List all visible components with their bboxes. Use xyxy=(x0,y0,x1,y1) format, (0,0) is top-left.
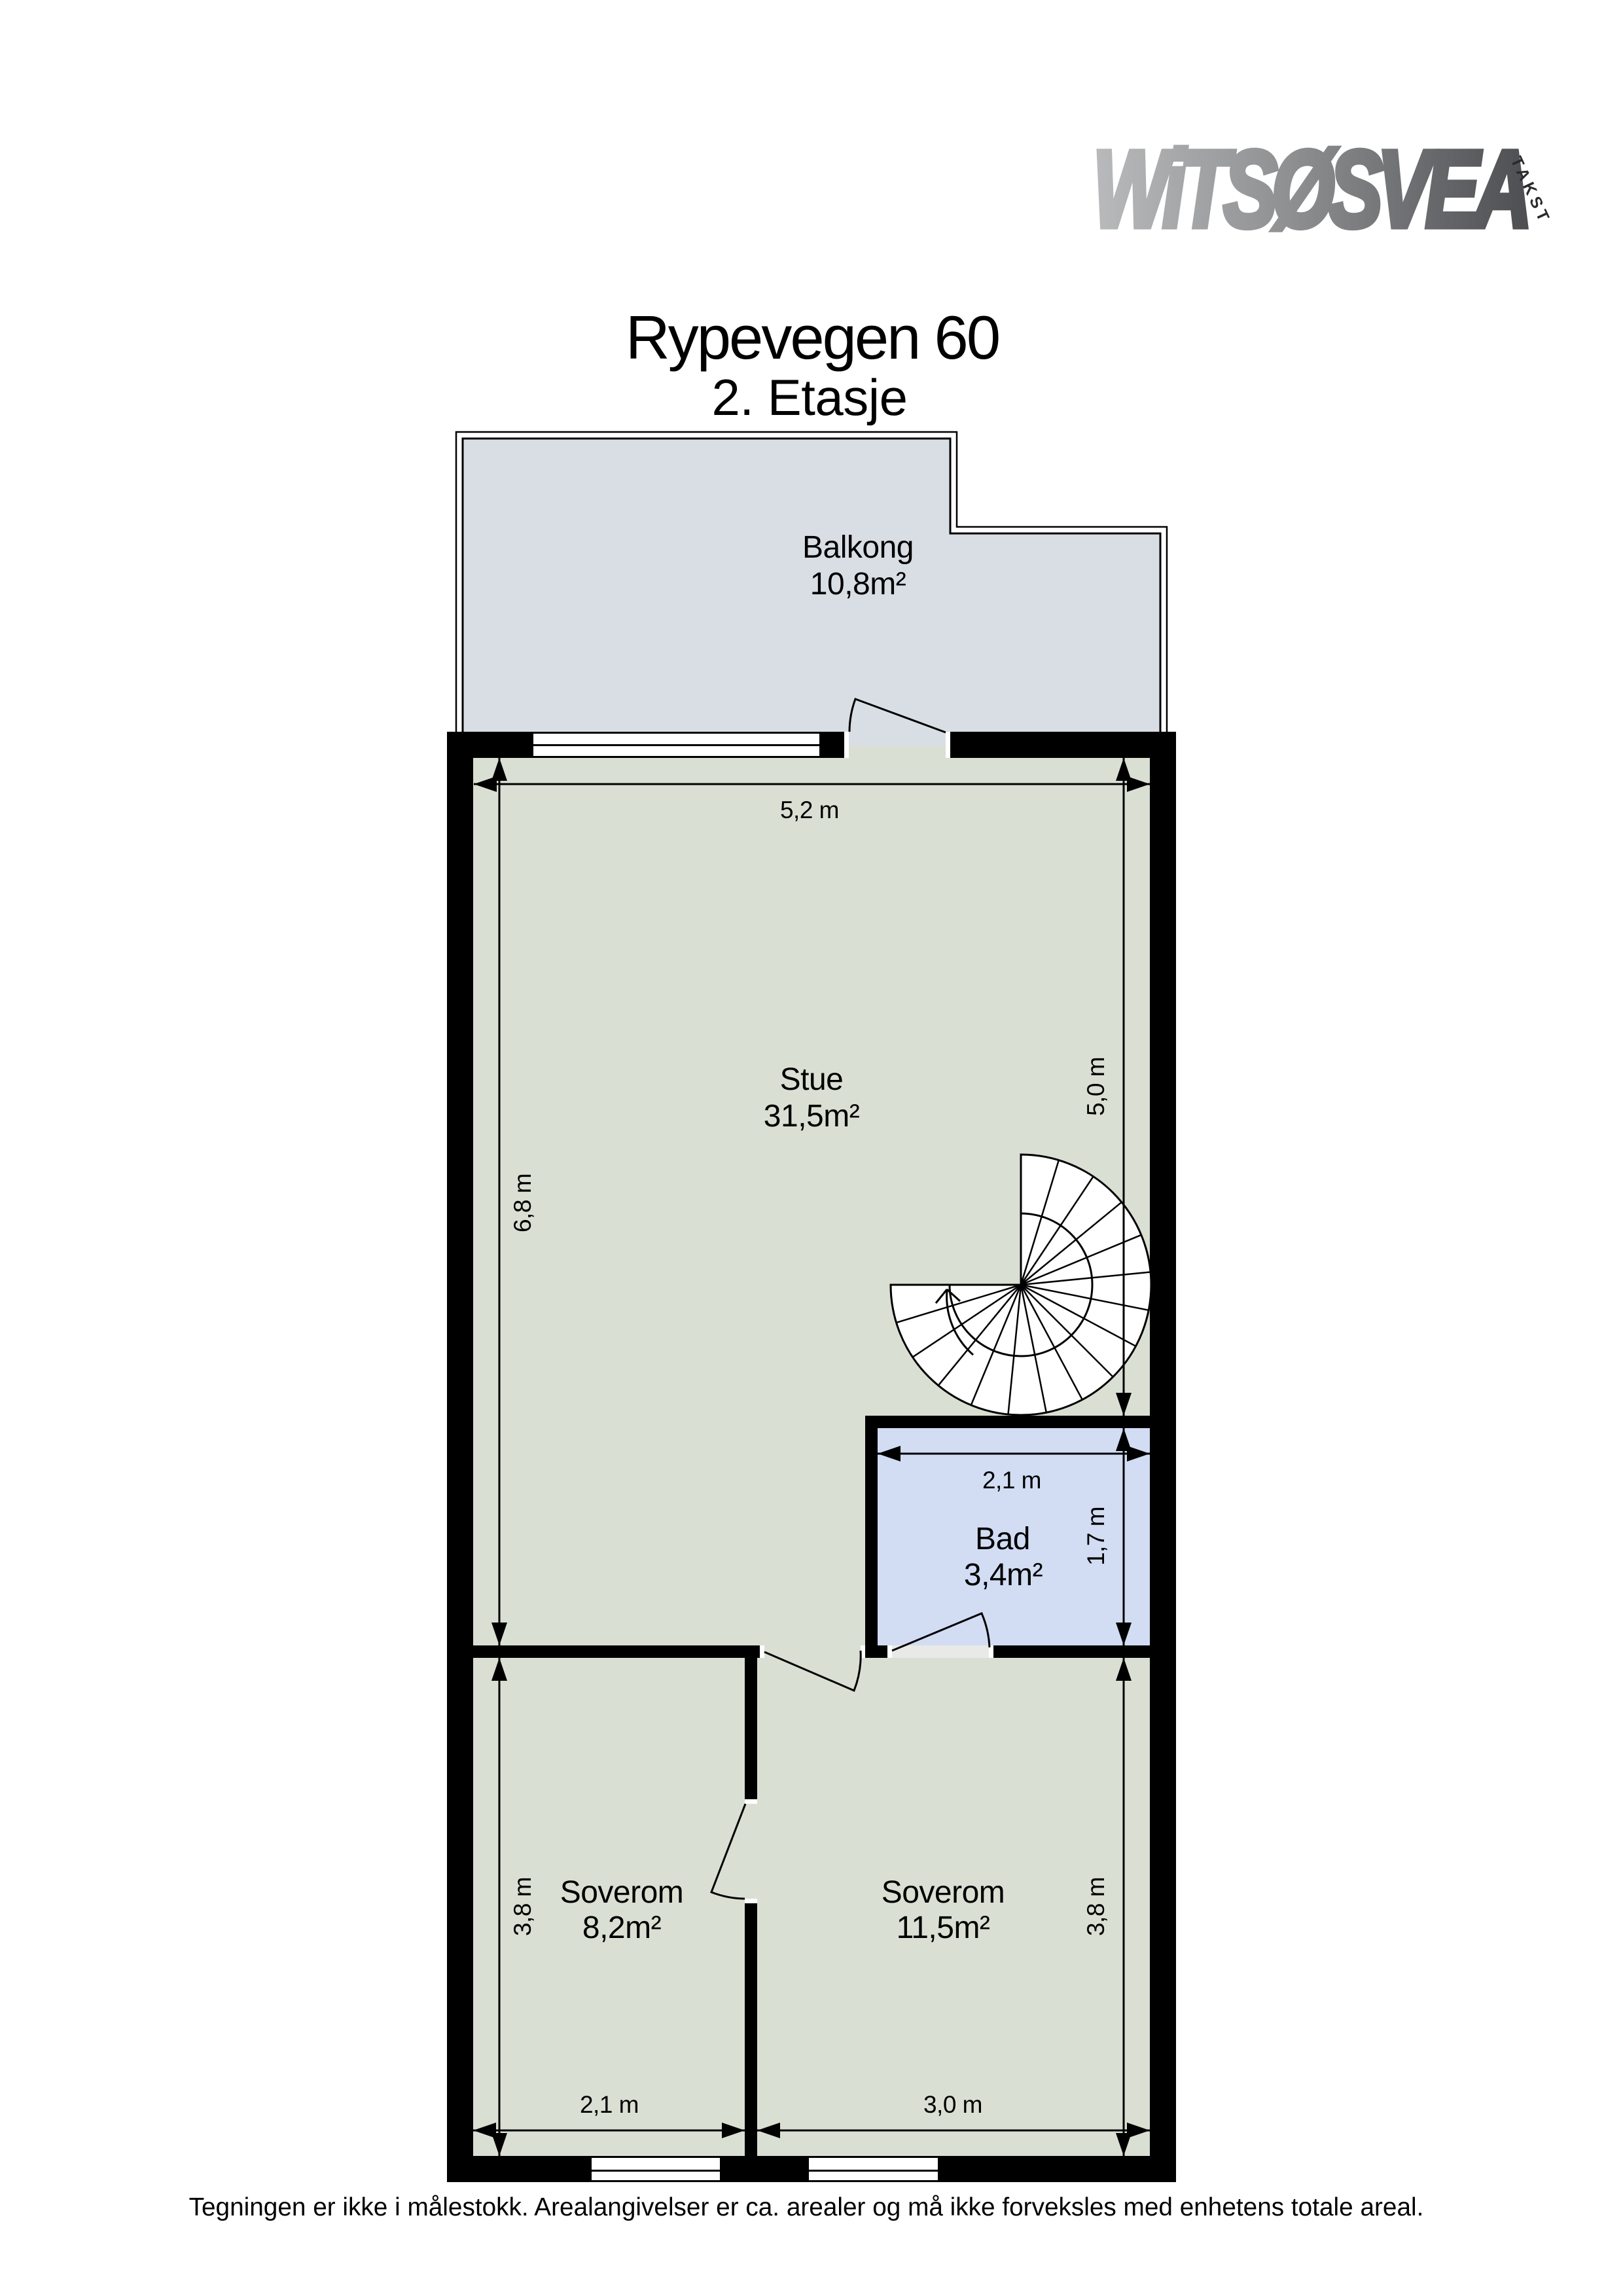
svg-text:2,1 m: 2,1 m xyxy=(982,1467,1041,1494)
svg-text:Balkong: Balkong xyxy=(802,530,914,565)
svg-text:Stue: Stue xyxy=(780,1062,844,1097)
svg-text:3,8 m: 3,8 m xyxy=(509,1877,536,1936)
svg-text:10,8m²: 10,8m² xyxy=(810,567,906,601)
svg-text:5,2 m: 5,2 m xyxy=(780,797,839,823)
svg-text:Soverom: Soverom xyxy=(560,1875,684,1910)
svg-text:3,8 m: 3,8 m xyxy=(1082,1877,1109,1936)
svg-text:Rypevegen 60: Rypevegen 60 xyxy=(626,303,999,372)
svg-text:1,7 m: 1,7 m xyxy=(1082,1507,1109,1566)
svg-text:2,1 m: 2,1 m xyxy=(580,2091,639,2118)
svg-text:Bad: Bad xyxy=(975,1522,1030,1556)
svg-text:WiTSØSVEA: WiTSØSVEA xyxy=(1093,128,1527,249)
svg-text:3,4m²: 3,4m² xyxy=(964,1558,1043,1592)
svg-text:8,2m²: 8,2m² xyxy=(582,1910,662,1945)
svg-text:Soverom: Soverom xyxy=(882,1875,1005,1910)
svg-text:Tegningen er ikke i målestokk.: Tegningen er ikke i målestokk. Arealangi… xyxy=(189,2193,1424,2221)
svg-text:5,0 m: 5,0 m xyxy=(1082,1057,1109,1116)
svg-text:11,5m²: 11,5m² xyxy=(897,1910,990,1945)
svg-text:2. Etasje: 2. Etasje xyxy=(711,368,907,426)
svg-text:3,0 m: 3,0 m xyxy=(923,2091,982,2118)
svg-text:31,5m²: 31,5m² xyxy=(764,1099,860,1134)
svg-text:6,8 m: 6,8 m xyxy=(509,1174,536,1232)
